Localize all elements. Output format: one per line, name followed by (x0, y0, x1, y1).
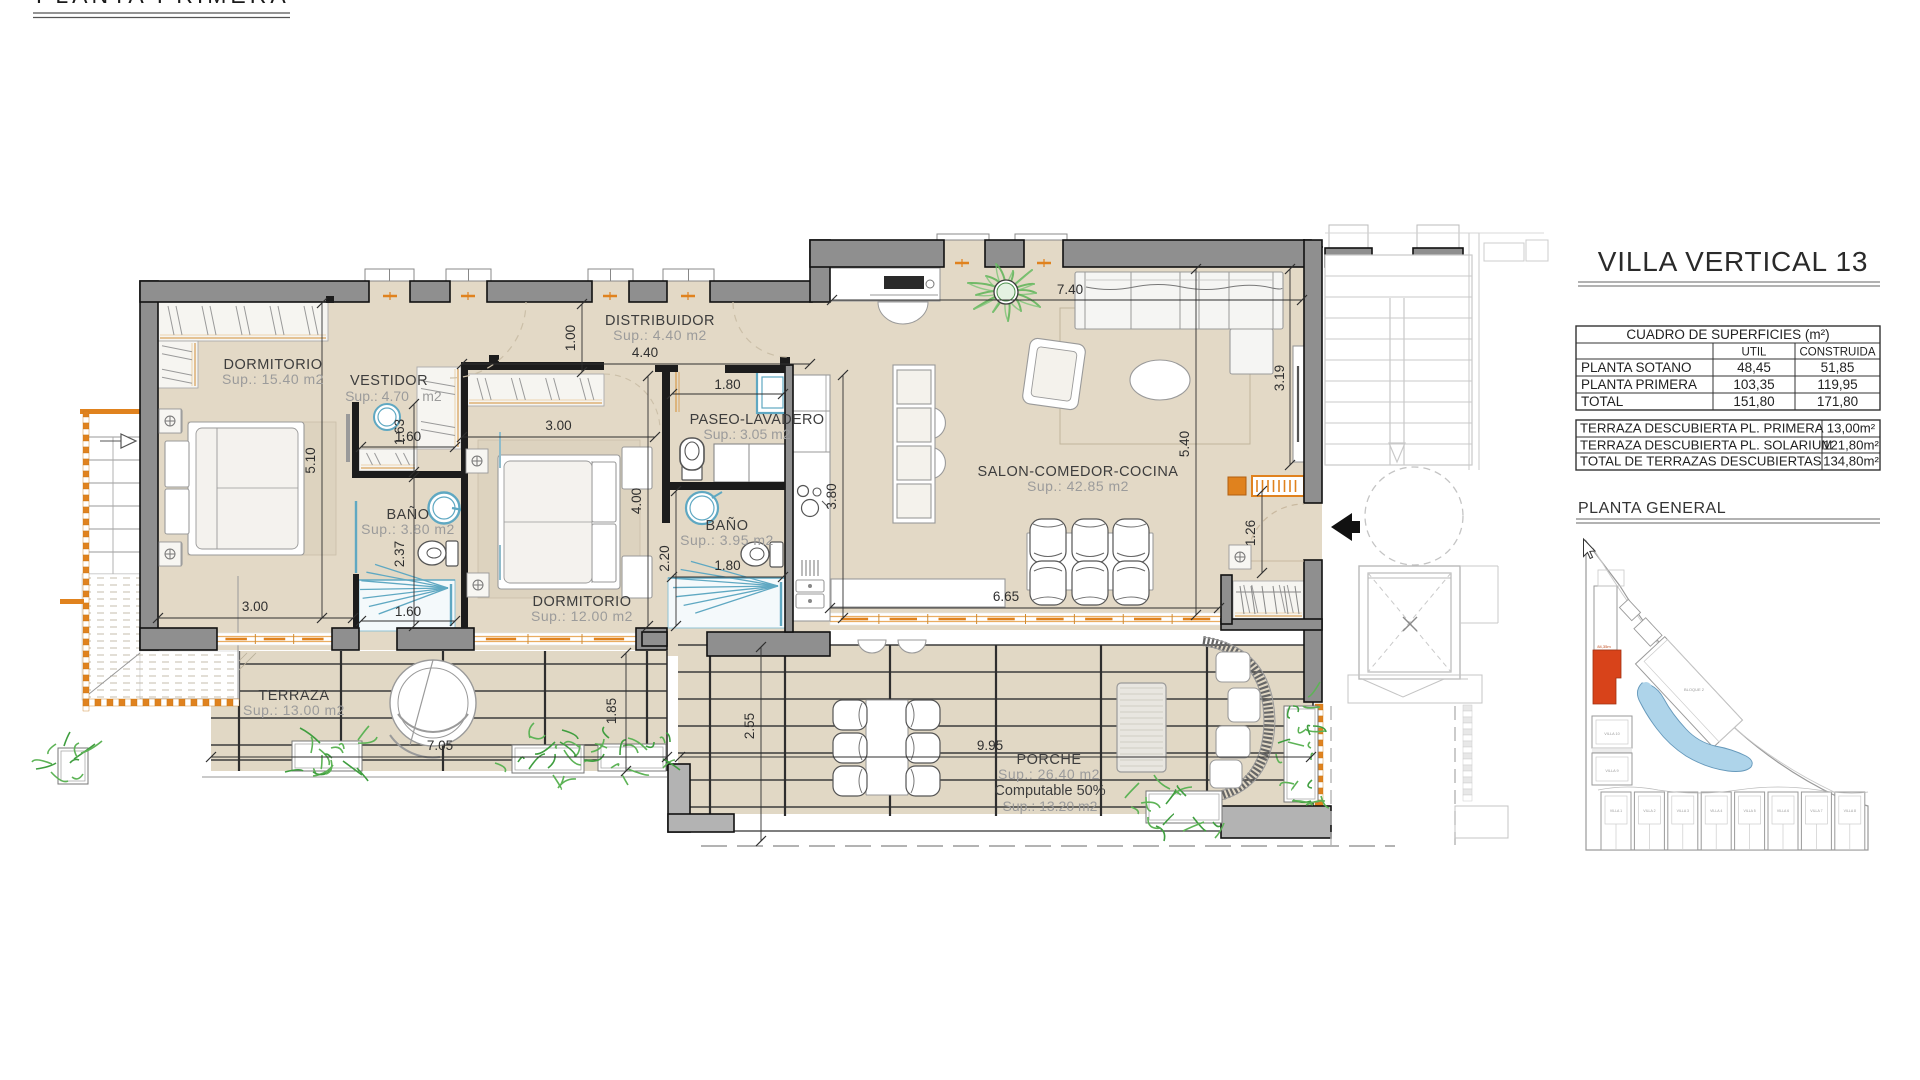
svg-text:9.95: 9.95 (977, 738, 1003, 753)
svg-text:13,00m²: 13,00m² (1827, 421, 1876, 436)
svg-text:3.19: 3.19 (1272, 365, 1287, 391)
svg-text:2.55: 2.55 (742, 713, 757, 739)
svg-text:1.63: 1.63 (392, 419, 407, 445)
svg-text:UTIL: UTIL (1742, 347, 1768, 359)
svg-text:3.00: 3.00 (545, 418, 571, 433)
svg-text:121,80m²: 121,80m² (1823, 438, 1879, 453)
svg-text:VILLA 9: VILLA 9 (1605, 769, 1618, 773)
svg-text:TOTAL DE TERRAZAS DESCUBIERTAS: TOTAL DE TERRAZAS DESCUBIERTAS (1580, 454, 1822, 469)
svg-text:51,85: 51,85 (1821, 360, 1855, 375)
svg-text:2.37: 2.37 (392, 541, 407, 567)
svg-text:134,80m²: 134,80m² (1823, 454, 1879, 469)
svg-text:5.40: 5.40 (1177, 431, 1192, 457)
svg-text:1.00: 1.00 (563, 325, 578, 351)
svg-text:6.65: 6.65 (993, 589, 1019, 604)
svg-text:1.80: 1.80 (714, 377, 740, 392)
svg-text:VILLA 6: VILLA 6 (1777, 809, 1789, 813)
svg-text:m2: m2 (422, 388, 442, 404)
svg-text:Sup.: 12.00 m2: Sup.: 12.00 m2 (531, 608, 633, 624)
svg-text:48,45: 48,45 (1737, 360, 1771, 375)
svg-text:2.20: 2.20 (657, 545, 672, 571)
svg-text:VILLA 8: VILLA 8 (1844, 809, 1856, 813)
svg-text:7.05: 7.05 (427, 738, 453, 753)
svg-text:VESTIDOR: VESTIDOR (350, 373, 428, 389)
svg-text:151,80: 151,80 (1733, 394, 1774, 409)
svg-text:4.00: 4.00 (629, 488, 644, 514)
svg-text:VILLA 4: VILLA 4 (1710, 809, 1722, 813)
svg-text:Sup.: 13.20 m2: Sup.: 13.20 m2 (1003, 798, 1098, 814)
svg-text:Sup.: 4.40 m2: Sup.: 4.40 m2 (613, 327, 707, 343)
svg-text:VILLA 10: VILLA 10 (1604, 732, 1619, 736)
svg-text:TERRAZA DESCUBIERTA PL. PRIMER: TERRAZA DESCUBIERTA PL. PRIMERA (1580, 421, 1824, 436)
svg-text:VILLA VERTICAL 13: VILLA VERTICAL 13 (1598, 246, 1868, 277)
svg-text:7.40: 7.40 (1057, 282, 1083, 297)
svg-text:TOTAL: TOTAL (1581, 394, 1624, 409)
svg-text:Sup.: 3.80 m2: Sup.: 3.80 m2 (361, 521, 455, 537)
svg-text:CONSTRUIDA: CONSTRUIDA (1799, 347, 1875, 359)
svg-text:Sup.: 4.70: Sup.: 4.70 (345, 388, 409, 404)
svg-text:Sup.: 42.85 m2: Sup.: 42.85 m2 (1027, 478, 1129, 494)
svg-text:3.80: 3.80 (824, 483, 839, 509)
svg-text:84,35m: 84,35m (1597, 644, 1611, 649)
svg-text:PLANTA GENERAL: PLANTA GENERAL (1578, 500, 1726, 517)
svg-text:103,35: 103,35 (1733, 377, 1774, 392)
svg-text:Sup.: 13.00 m2: Sup.: 13.00 m2 (243, 702, 345, 718)
svg-text:1.80: 1.80 (714, 558, 740, 573)
svg-text:PLANTA SOTANO: PLANTA SOTANO (1581, 360, 1692, 375)
svg-text:1.60: 1.60 (395, 604, 421, 619)
svg-text:119,95: 119,95 (1817, 377, 1857, 392)
svg-text:3.00: 3.00 (242, 599, 268, 614)
svg-text:TERRAZA DESCUBIERTA PL. SOLARI: TERRAZA DESCUBIERTA PL. SOLARIUM (1580, 438, 1832, 453)
svg-text:171,80: 171,80 (1817, 394, 1858, 409)
svg-text:Sup.: 3.95 m2: Sup.: 3.95 m2 (680, 532, 774, 548)
svg-text:Sup.: 3.05 m2: Sup.: 3.05 m2 (703, 426, 790, 442)
svg-text:VILLA 2: VILLA 2 (1643, 809, 1655, 813)
svg-text:Sup.: 26.40 m2: Sup.: 26.40 m2 (998, 766, 1100, 782)
svg-text:Computable 50%: Computable 50% (994, 783, 1105, 799)
svg-text:PLANTA PRIMERA: PLANTA PRIMERA (36, 0, 290, 8)
svg-text:1.26: 1.26 (1243, 520, 1258, 546)
svg-text:VILLA 7: VILLA 7 (1810, 809, 1822, 813)
svg-text:VILLA 1: VILLA 1 (1610, 809, 1622, 813)
svg-text:PLANTA PRIMERA: PLANTA PRIMERA (1581, 377, 1697, 392)
svg-text:VILLA 3: VILLA 3 (1677, 809, 1689, 813)
svg-text:1.85: 1.85 (604, 698, 619, 724)
svg-text:4.40: 4.40 (632, 345, 658, 360)
svg-text:BLOQUE 2: BLOQUE 2 (1684, 687, 1705, 692)
svg-text:Sup.: 15.40 m2: Sup.: 15.40 m2 (222, 371, 324, 387)
svg-text:5.10: 5.10 (303, 447, 318, 473)
svg-text:CUADRO DE SUPERFICIES (m²): CUADRO DE SUPERFICIES (m²) (1626, 327, 1829, 342)
svg-text:VILLA 5: VILLA 5 (1743, 809, 1755, 813)
